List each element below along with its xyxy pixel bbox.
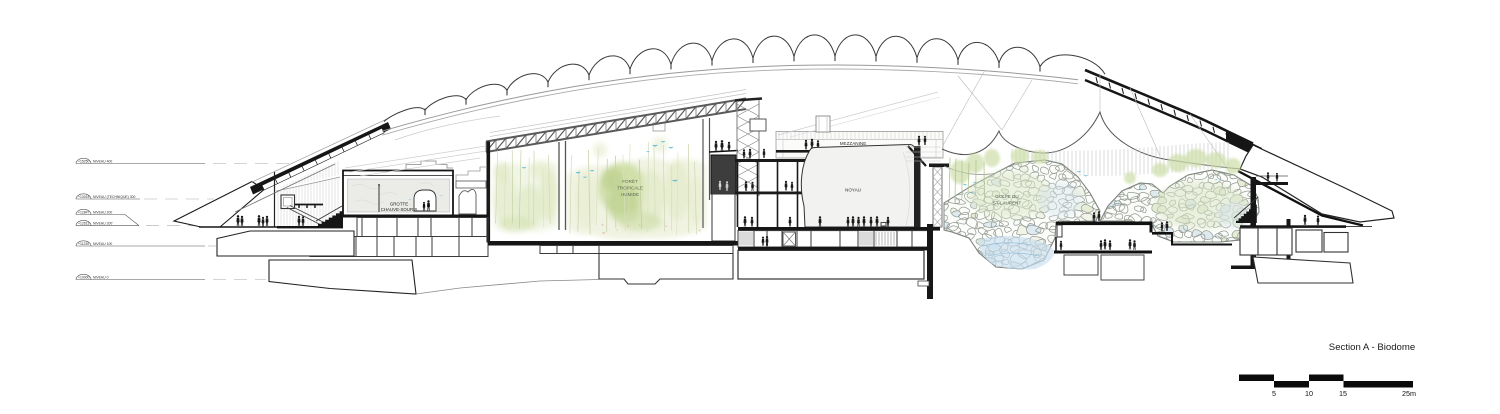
svg-text:MEZZANINE: MEZZANINE <box>840 141 867 146</box>
svg-text:NIVEAU 100: NIVEAU 100 <box>93 242 112 246</box>
svg-text:+10000: +10000 <box>78 275 90 279</box>
svg-text:CHAUVE-SOURIS: CHAUVE-SOURIS <box>381 207 418 212</box>
svg-text:NIVEAU 0: NIVEAU 0 <box>93 275 109 279</box>
svg-text:Section A - Biodome: Section A - Biodome <box>1329 342 1415 353</box>
svg-text:NIVEAU 200': NIVEAU 200' <box>93 222 113 226</box>
svg-text:NIVEAU 200: NIVEAU 200 <box>93 210 112 214</box>
svg-text:+13015: +13015 <box>78 195 90 199</box>
svg-text:+12847: +12847 <box>78 210 90 214</box>
svg-text:5: 5 <box>1272 389 1276 398</box>
svg-text:15: 15 <box>1339 389 1347 398</box>
svg-text:+11230: +11230 <box>78 242 89 246</box>
svg-text:ST-LAURENT: ST-LAURENT <box>993 201 1022 206</box>
svg-text:10: 10 <box>1305 389 1313 398</box>
svg-text:FORÊT: FORÊT <box>622 177 638 184</box>
svg-text:TROPICALE: TROPICALE <box>617 186 643 191</box>
svg-text:NIVEAU (TECHNIQUE) 300: NIVEAU (TECHNIQUE) 300 <box>93 195 136 199</box>
svg-text:GROTTE: GROTTE <box>390 202 408 207</box>
svg-text:NIVEAU 400: NIVEAU 400 <box>93 159 112 163</box>
svg-text:+12613: +12613 <box>78 222 90 226</box>
svg-text:HUMIDE: HUMIDE <box>621 192 639 197</box>
svg-text:25m: 25m <box>1402 389 1416 398</box>
svg-text:GOLFE DU: GOLFE DU <box>995 194 1018 199</box>
svg-text:NOYAU: NOYAU <box>845 188 861 193</box>
svg-text:+15250: +15250 <box>78 159 90 163</box>
